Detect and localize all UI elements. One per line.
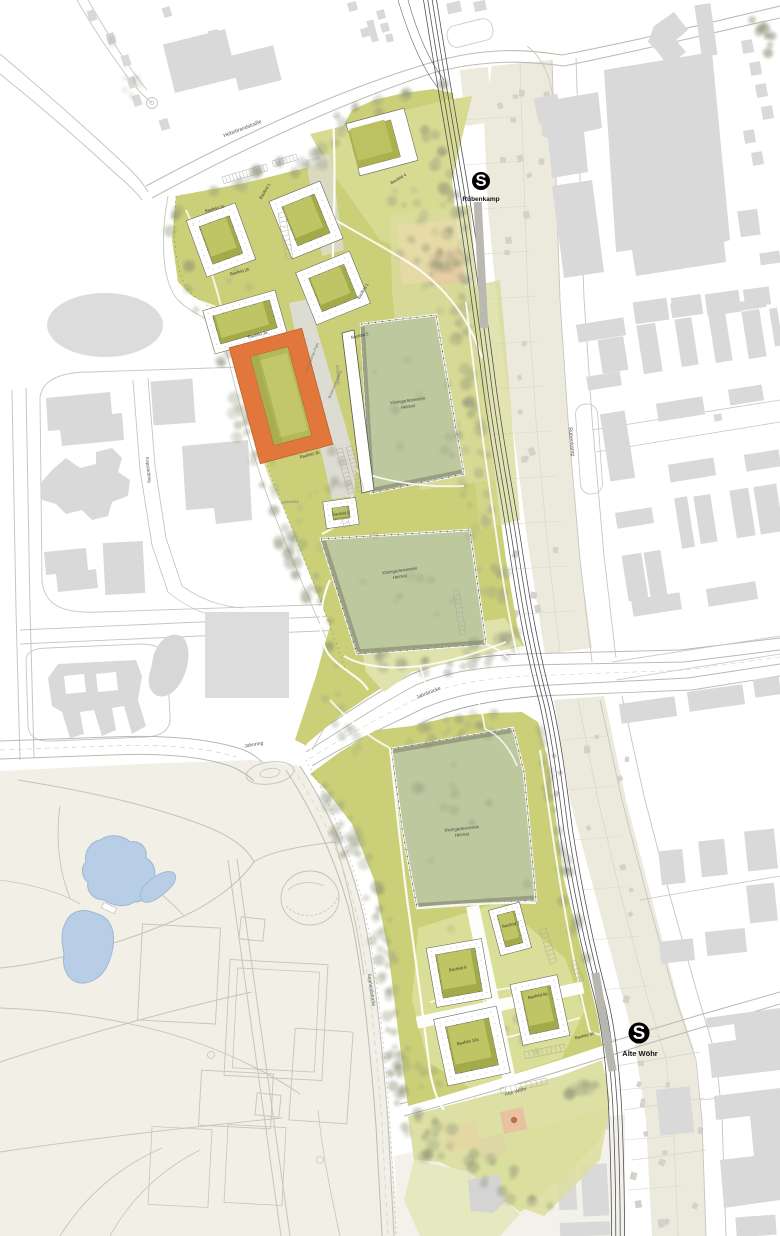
svg-text:Alte Wöhr: Alte Wöhr	[622, 1049, 657, 1058]
svg-text:Rübenkamp: Rübenkamp	[462, 196, 499, 203]
svg-text:S: S	[475, 172, 486, 190]
svg-text:S: S	[633, 1023, 646, 1044]
